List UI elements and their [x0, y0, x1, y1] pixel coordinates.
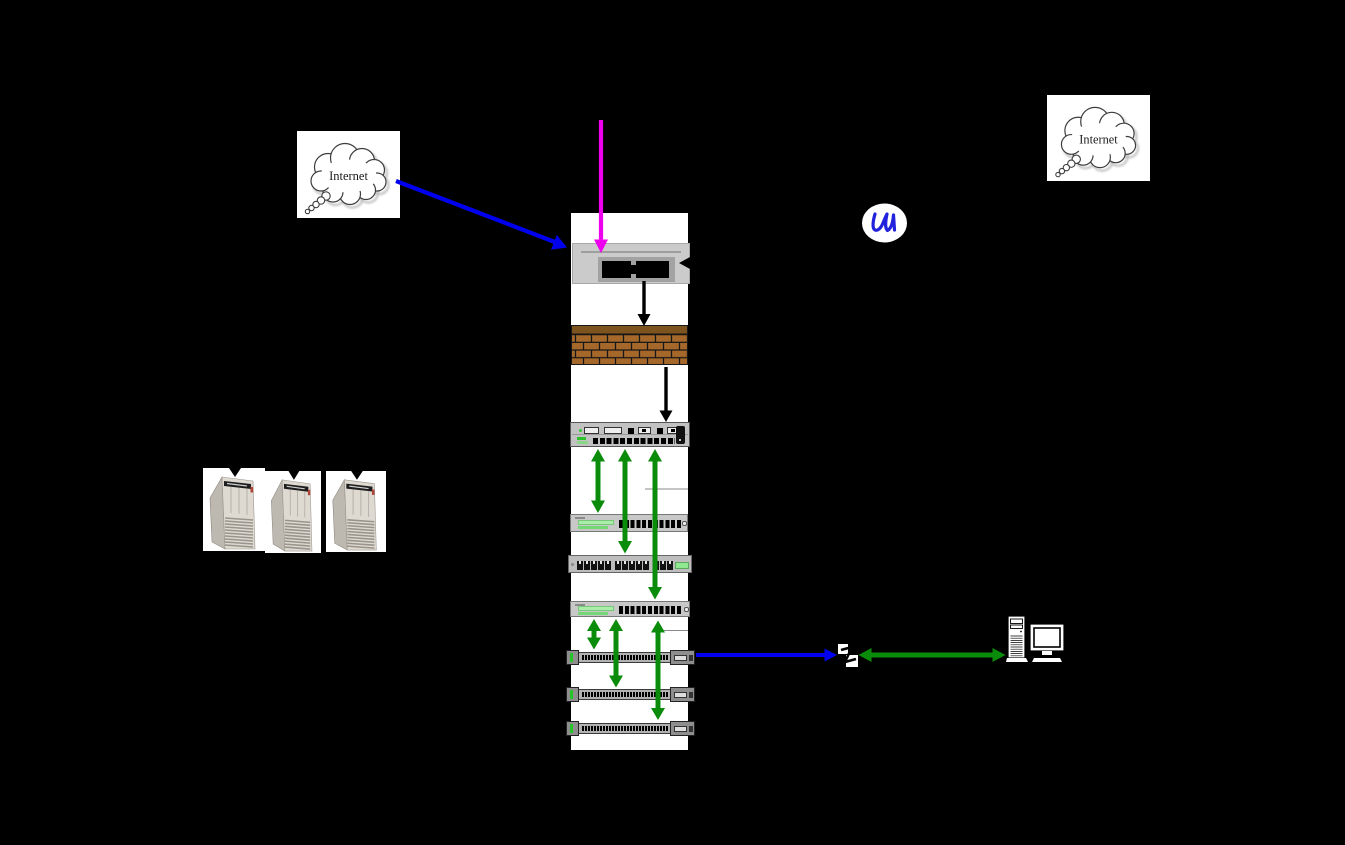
switch-right-cap	[670, 721, 695, 736]
router-port	[657, 428, 663, 434]
switch-right-cap	[670, 687, 695, 702]
patch-jack-notches	[615, 561, 649, 564]
cloud-label: Internet	[1079, 132, 1118, 146]
firewall-bricks	[571, 325, 688, 365]
cloud-label: Internet	[329, 169, 368, 183]
switch-left-cap	[566, 687, 579, 702]
router-slot	[584, 427, 599, 434]
workstation-tower	[1006, 616, 1028, 662]
server-1	[203, 468, 265, 551]
switch-left-cap	[566, 721, 579, 736]
access-switch-3	[566, 721, 695, 736]
squiggle-annotation	[861, 202, 908, 244]
switch-ports	[582, 692, 668, 697]
server-3	[326, 471, 386, 552]
switch-ports	[619, 520, 683, 528]
switch-uplink-port	[682, 521, 687, 526]
router-ports	[593, 438, 675, 444]
modem-top-groove	[581, 251, 681, 253]
router-led-bar-icon	[577, 437, 586, 440]
switch-ports	[582, 655, 668, 660]
router-led-bar-icon	[577, 441, 588, 444]
internet-cloud-right: Internet	[1047, 95, 1150, 181]
screw-icon	[571, 563, 574, 566]
arrowhead-into-server	[351, 471, 363, 480]
switch-led-icon	[570, 724, 573, 733]
switch-led-icon	[570, 690, 573, 699]
switch-led-bar-icon	[578, 612, 608, 615]
arrowhead-into-server	[229, 468, 241, 477]
modem-notch-icon	[679, 257, 690, 269]
patch-jack-notches	[577, 561, 611, 564]
access-switch-2	[566, 687, 695, 702]
wall-jack	[836, 642, 860, 668]
distribution-switch-1	[570, 514, 688, 532]
workstation-monitor	[1030, 624, 1064, 662]
server-badge-icon	[251, 487, 254, 493]
server-badge-icon	[372, 490, 375, 495]
switch-ports	[582, 726, 668, 731]
rack-column	[571, 213, 688, 750]
modem-face	[598, 257, 675, 282]
router-port	[628, 428, 634, 434]
switch-led-bar-icon	[578, 520, 614, 525]
internet-cloud-left: Internet	[297, 131, 400, 218]
jack-cable-icon	[841, 647, 856, 662]
edge-internet-to-modem	[396, 181, 567, 250]
switch-right-cap	[670, 650, 695, 665]
edge-access1-to-wall-jack	[696, 649, 837, 662]
screenshot-root: { "clouds": { "left": { "label": "Intern…	[0, 0, 1345, 845]
switch-logo	[575, 517, 585, 519]
firewall	[571, 325, 688, 365]
server-badge-icon	[308, 490, 310, 495]
network-diagram: Internet Internet	[0, 0, 1345, 845]
distribution-switch-2	[570, 601, 690, 617]
edge-wall-jack-to-workstation	[859, 648, 1006, 662]
switch-led-bar-icon	[578, 526, 608, 529]
modem-display-right	[636, 261, 669, 278]
router-power-module	[676, 426, 685, 444]
server-2	[265, 471, 321, 553]
patch-label-icon	[675, 562, 689, 569]
router-slot	[638, 427, 651, 434]
patch-jack-notches	[653, 561, 673, 564]
switch-led-icon	[570, 653, 573, 662]
switch-left-cap	[566, 650, 579, 665]
access-switch-1	[566, 650, 695, 665]
core-router	[570, 422, 690, 447]
arrowhead-into-server	[288, 471, 299, 480]
workstation	[1006, 614, 1068, 666]
switch-uplink-port	[684, 607, 689, 612]
router-led-icon	[579, 429, 582, 432]
switch-ports	[619, 606, 683, 614]
router-divider	[572, 434, 688, 435]
router-slot	[604, 427, 622, 434]
cable-modem	[572, 243, 690, 284]
switch-led-bar-icon	[578, 606, 614, 611]
modem-display-waist	[627, 265, 640, 274]
patch-panel	[568, 555, 692, 573]
